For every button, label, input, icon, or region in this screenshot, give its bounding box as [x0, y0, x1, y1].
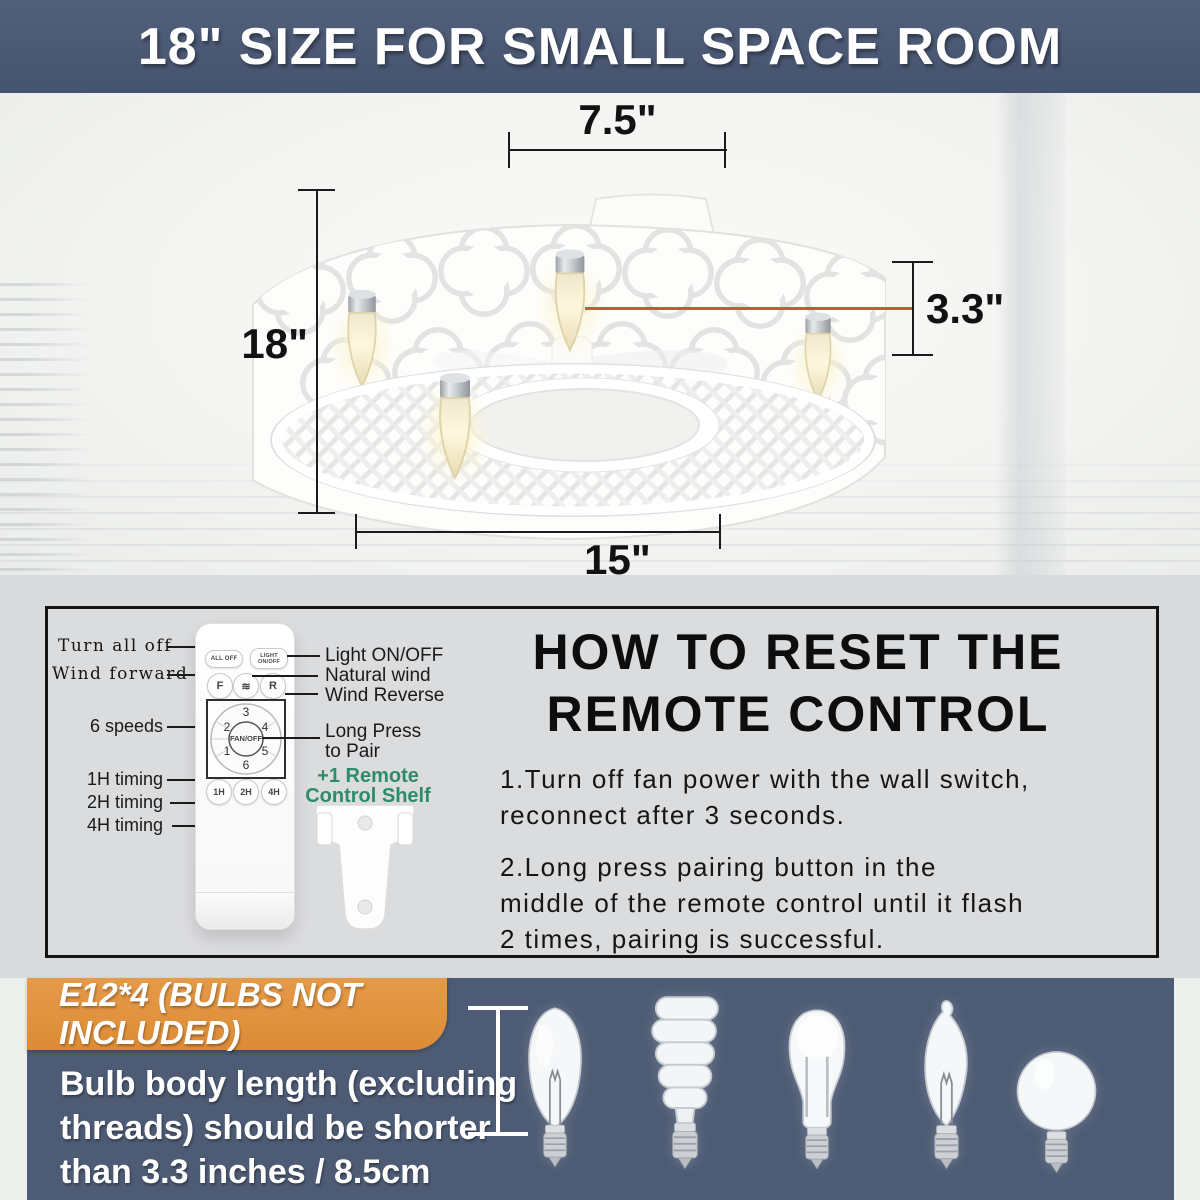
- bulb-length-note: Bulb body length (excluding threads) sho…: [60, 1062, 517, 1194]
- height-tick-top: [298, 189, 335, 191]
- speed-2: 2: [220, 720, 234, 734]
- bulb-height-tick-bottom: [892, 354, 933, 356]
- reset-step-2: 2.Long press pairing button in the middl…: [500, 849, 1024, 957]
- spiral-cfl-bulb-icon: [638, 984, 732, 1172]
- timer-1h-button: 1H: [206, 779, 232, 805]
- speed-6: 6: [239, 758, 253, 772]
- bulb-height-dimension-label: 3.3": [926, 285, 1046, 333]
- remote-shelf-bracket: [313, 801, 417, 933]
- height-tick-bottom: [298, 512, 335, 514]
- header-banner: 18" SIZE FOR SMALL SPACE ROOM: [0, 0, 1200, 95]
- timer-2h-button: 2H: [233, 779, 259, 805]
- remote-instructions-box: Turn all off Wind forward 6 speeds 1H ti…: [45, 606, 1159, 958]
- remote-label-6-speeds: 6 speeds: [83, 716, 163, 737]
- leader-line: [287, 655, 320, 657]
- wall-corner-shading: [995, 93, 1065, 575]
- remote-label-to-pair: to Pair: [325, 741, 380, 763]
- speed-3: 3: [239, 705, 253, 719]
- speed-1: 1: [220, 744, 234, 758]
- speed-5: 5: [258, 744, 272, 758]
- fan-off-button: FAN/OFF: [226, 734, 266, 743]
- top-width-tick-left: [508, 132, 510, 168]
- reset-step-1: 1.Turn off fan power with the wall switc…: [500, 761, 1030, 833]
- remote-control: ALL OFF LIGHT ON/OFF F ≋ R: [195, 623, 295, 930]
- leader-line: [262, 737, 320, 739]
- height-dimension-label: 18": [228, 320, 308, 368]
- remote-label-4h-timing: 4H timing: [83, 815, 163, 836]
- page-title: 18" SIZE FOR SMALL SPACE ROOM: [138, 17, 1062, 77]
- timer-4h-button: 4H: [261, 779, 287, 805]
- remote-label-wind-forward: Wind forward: [52, 664, 163, 684]
- bulb-height-dimension-line: [912, 262, 914, 356]
- reset-title-line1: HOW TO RESET THE: [448, 623, 1148, 681]
- natural-wind-icon: ≋: [241, 680, 250, 693]
- top-width-tick-right: [724, 132, 726, 168]
- bulb-type-banner-text: E12*4 (BULBS NOT INCLUDED): [59, 976, 447, 1052]
- wind-forward-button: F: [207, 673, 233, 699]
- light-on-off-button: LIGHT ON/OFF: [250, 648, 288, 669]
- top-width-dimension-label: 7.5": [545, 96, 690, 144]
- led-bulb-icon: [774, 1000, 860, 1172]
- remote-label-natural-wind: Natural wind: [325, 665, 431, 687]
- top-width-dimension-line: [509, 149, 727, 151]
- all-off-button: ALL OFF: [205, 650, 243, 668]
- leader-line: [252, 675, 318, 677]
- bottom-width-tick-right: [719, 514, 721, 549]
- globe-bulb-icon: [1014, 1030, 1099, 1174]
- bottom-width-dimension-line: [356, 531, 720, 533]
- flame-tip-bulb-icon: [902, 994, 991, 1172]
- remote-label-1h-timing: 1H timing: [83, 769, 163, 790]
- height-dimension-line: [316, 190, 318, 514]
- bulb-pointer-red-line: [585, 307, 912, 310]
- remote-label-wind-reverse: Wind Reverse: [325, 685, 444, 707]
- bulb-type-banner: E12*4 (BULBS NOT INCLUDED): [27, 978, 447, 1050]
- leader-line: [285, 693, 318, 695]
- caged-ceiling-fan-illustration: [240, 95, 1000, 565]
- incandescent-bulb-icon: [512, 998, 598, 1170]
- reset-title-line2: REMOTE CONTROL: [448, 685, 1148, 743]
- ceiling-photo: 7.5" 18" 3.3" 15": [0, 93, 1200, 575]
- remote-bottom-cap: [196, 892, 294, 929]
- remote-label-turn-all-off: Turn all off: [58, 636, 163, 656]
- product-infographic: 18" SIZE FOR SMALL SPACE ROOM: [0, 0, 1200, 1200]
- remote-label-light-on-off: Light ON/OFF: [325, 645, 443, 667]
- remote-label-long-press: Long Press: [325, 721, 421, 743]
- speed-4: 4: [258, 720, 272, 734]
- speed-dial: 3 2 4 1 5 6 FAN/OFF: [206, 699, 286, 779]
- bottom-width-tick-left: [355, 514, 357, 549]
- bulb-height-tick-top: [892, 261, 933, 263]
- remote-label-2h-timing: 2H timing: [83, 792, 163, 813]
